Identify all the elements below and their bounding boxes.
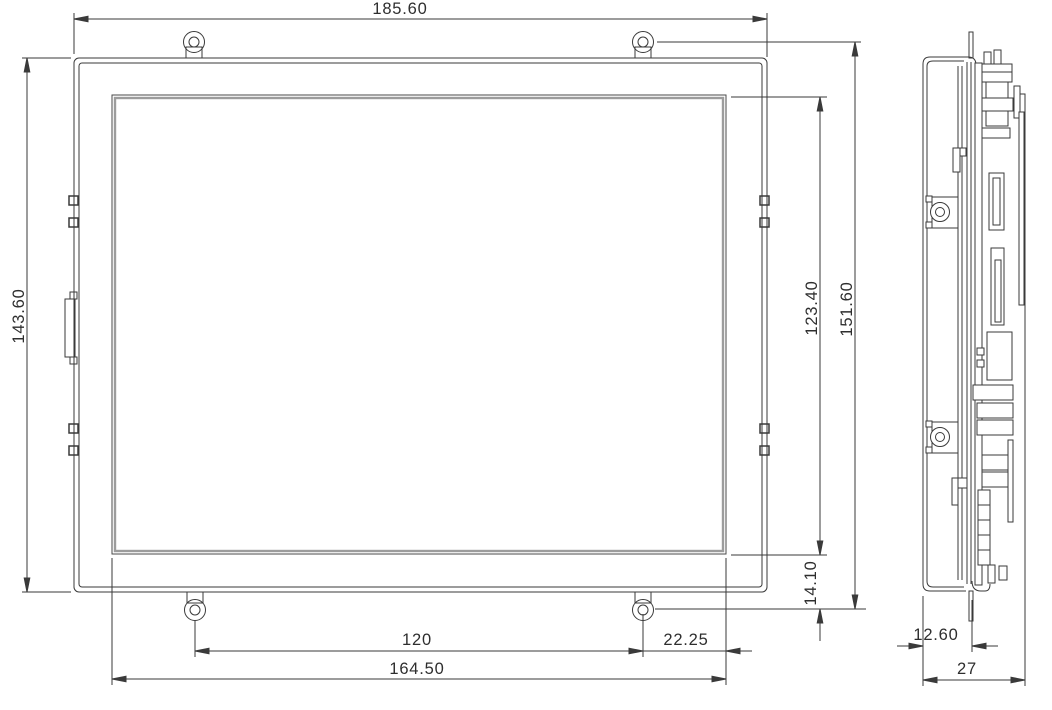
- drawing-canvas: 185.60 143.60 151.60 123.40 14.10 120 16…: [0, 0, 1052, 710]
- mount-hole-icon: [638, 37, 648, 47]
- side-bracket-lower: [926, 421, 958, 453]
- extension-lines: [22, 13, 1025, 686]
- display-active-area: [112, 95, 726, 554]
- side-connector: [65, 292, 77, 364]
- dim-overall-depth: [923, 677, 1025, 683]
- bracket-hole-icon: [936, 208, 945, 217]
- frame-inner-line: [79, 63, 762, 587]
- side-view: [923, 32, 1025, 621]
- front-view: [65, 32, 769, 621]
- dim-bezel-depth: [897, 643, 998, 649]
- dim-active-to-hole: [817, 609, 823, 641]
- dim-label-bezel-depth: 12.60: [913, 626, 958, 644]
- dim-label-active-height: 123.40: [803, 280, 821, 335]
- edge-clips: [69, 196, 769, 455]
- dim-hole-span-horizontal: [195, 648, 752, 654]
- dim-label-hole-to-active-right: 22.25: [663, 631, 708, 649]
- dim-label-overall-depth: 27: [957, 660, 977, 678]
- mount-tab-top-right: [633, 32, 654, 59]
- mount-tab-top-left: [184, 32, 205, 59]
- dim-label-active-width: 164.50: [389, 660, 444, 678]
- mount-hole-icon: [190, 605, 200, 615]
- top-pin: [969, 32, 973, 58]
- mount-hole-icon: [638, 605, 648, 615]
- mount-tab-bottom-left: [185, 592, 206, 621]
- display-active-area-heavy-line: [115, 98, 723, 551]
- pcb-components: [952, 50, 1025, 583]
- dim-label-hole-span-horizontal: 120: [402, 631, 432, 649]
- frame-outline: [74, 58, 767, 592]
- dim-label-active-to-hole: 14.10: [802, 560, 820, 605]
- bezel-outer-line: [923, 57, 966, 591]
- mount-hole-icon: [189, 37, 199, 47]
- dimensions: 185.60 143.60 151.60 123.40 14.10 120 16…: [10, 0, 1025, 686]
- dim-label-overall-height: 143.60: [10, 288, 28, 343]
- dim-label-overall-width: 185.60: [372, 0, 427, 18]
- bracket-hole-icon: [936, 433, 945, 442]
- cad-drawing-sheet: 185.60 143.60 151.60 123.40 14.10 120 16…: [0, 0, 1052, 710]
- dim-label-hole-span-vertical: 151.60: [838, 281, 856, 336]
- side-bracket-upper: [926, 196, 958, 228]
